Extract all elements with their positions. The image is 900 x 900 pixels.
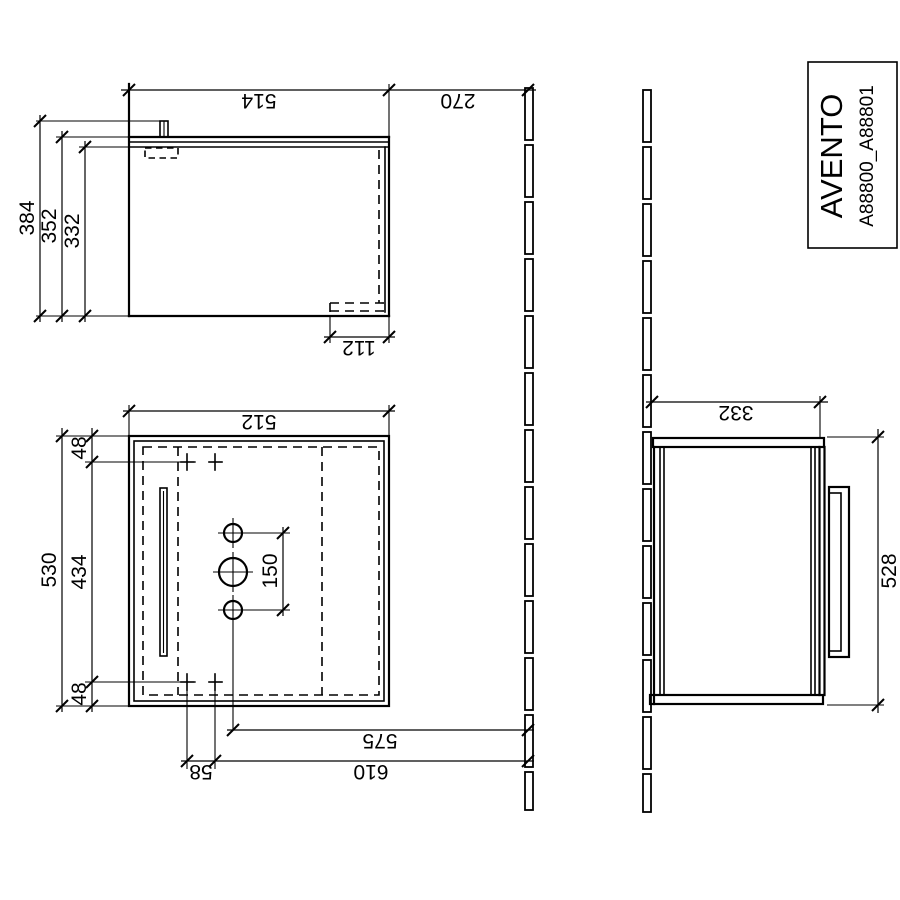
dim-label-528: 528: [878, 553, 900, 588]
article-numbers: A88800_A88801: [857, 85, 878, 227]
dim-label-610: 610: [353, 760, 388, 783]
dim-label-150: 150: [259, 553, 282, 588]
dim-label-112: 112: [342, 336, 375, 359]
dim-label-332-top: 332: [718, 401, 753, 424]
technical-drawing-page: 514 270 384 352 332 112: [0, 0, 900, 900]
dim-label-384: 384: [16, 200, 39, 235]
dim-label-352: 352: [38, 208, 61, 243]
dim-label-48-top: 48: [68, 436, 91, 459]
drawing-canvas: 514 270 384 352 332 112: [0, 0, 900, 900]
background: [0, 0, 900, 900]
dim-label-512: 512: [241, 410, 276, 433]
dim-label-434: 434: [68, 554, 91, 589]
dim-label-48-bottom: 48: [68, 682, 91, 705]
product-series-title: AVENTO: [814, 94, 849, 219]
dim-label-270: 270: [440, 89, 475, 112]
dim-label-58: 58: [189, 760, 212, 783]
dim-label-514: 514: [241, 89, 276, 112]
dim-label-332-side: 332: [61, 213, 84, 248]
dim-label-530: 530: [38, 552, 61, 587]
dim-label-575: 575: [362, 729, 397, 752]
